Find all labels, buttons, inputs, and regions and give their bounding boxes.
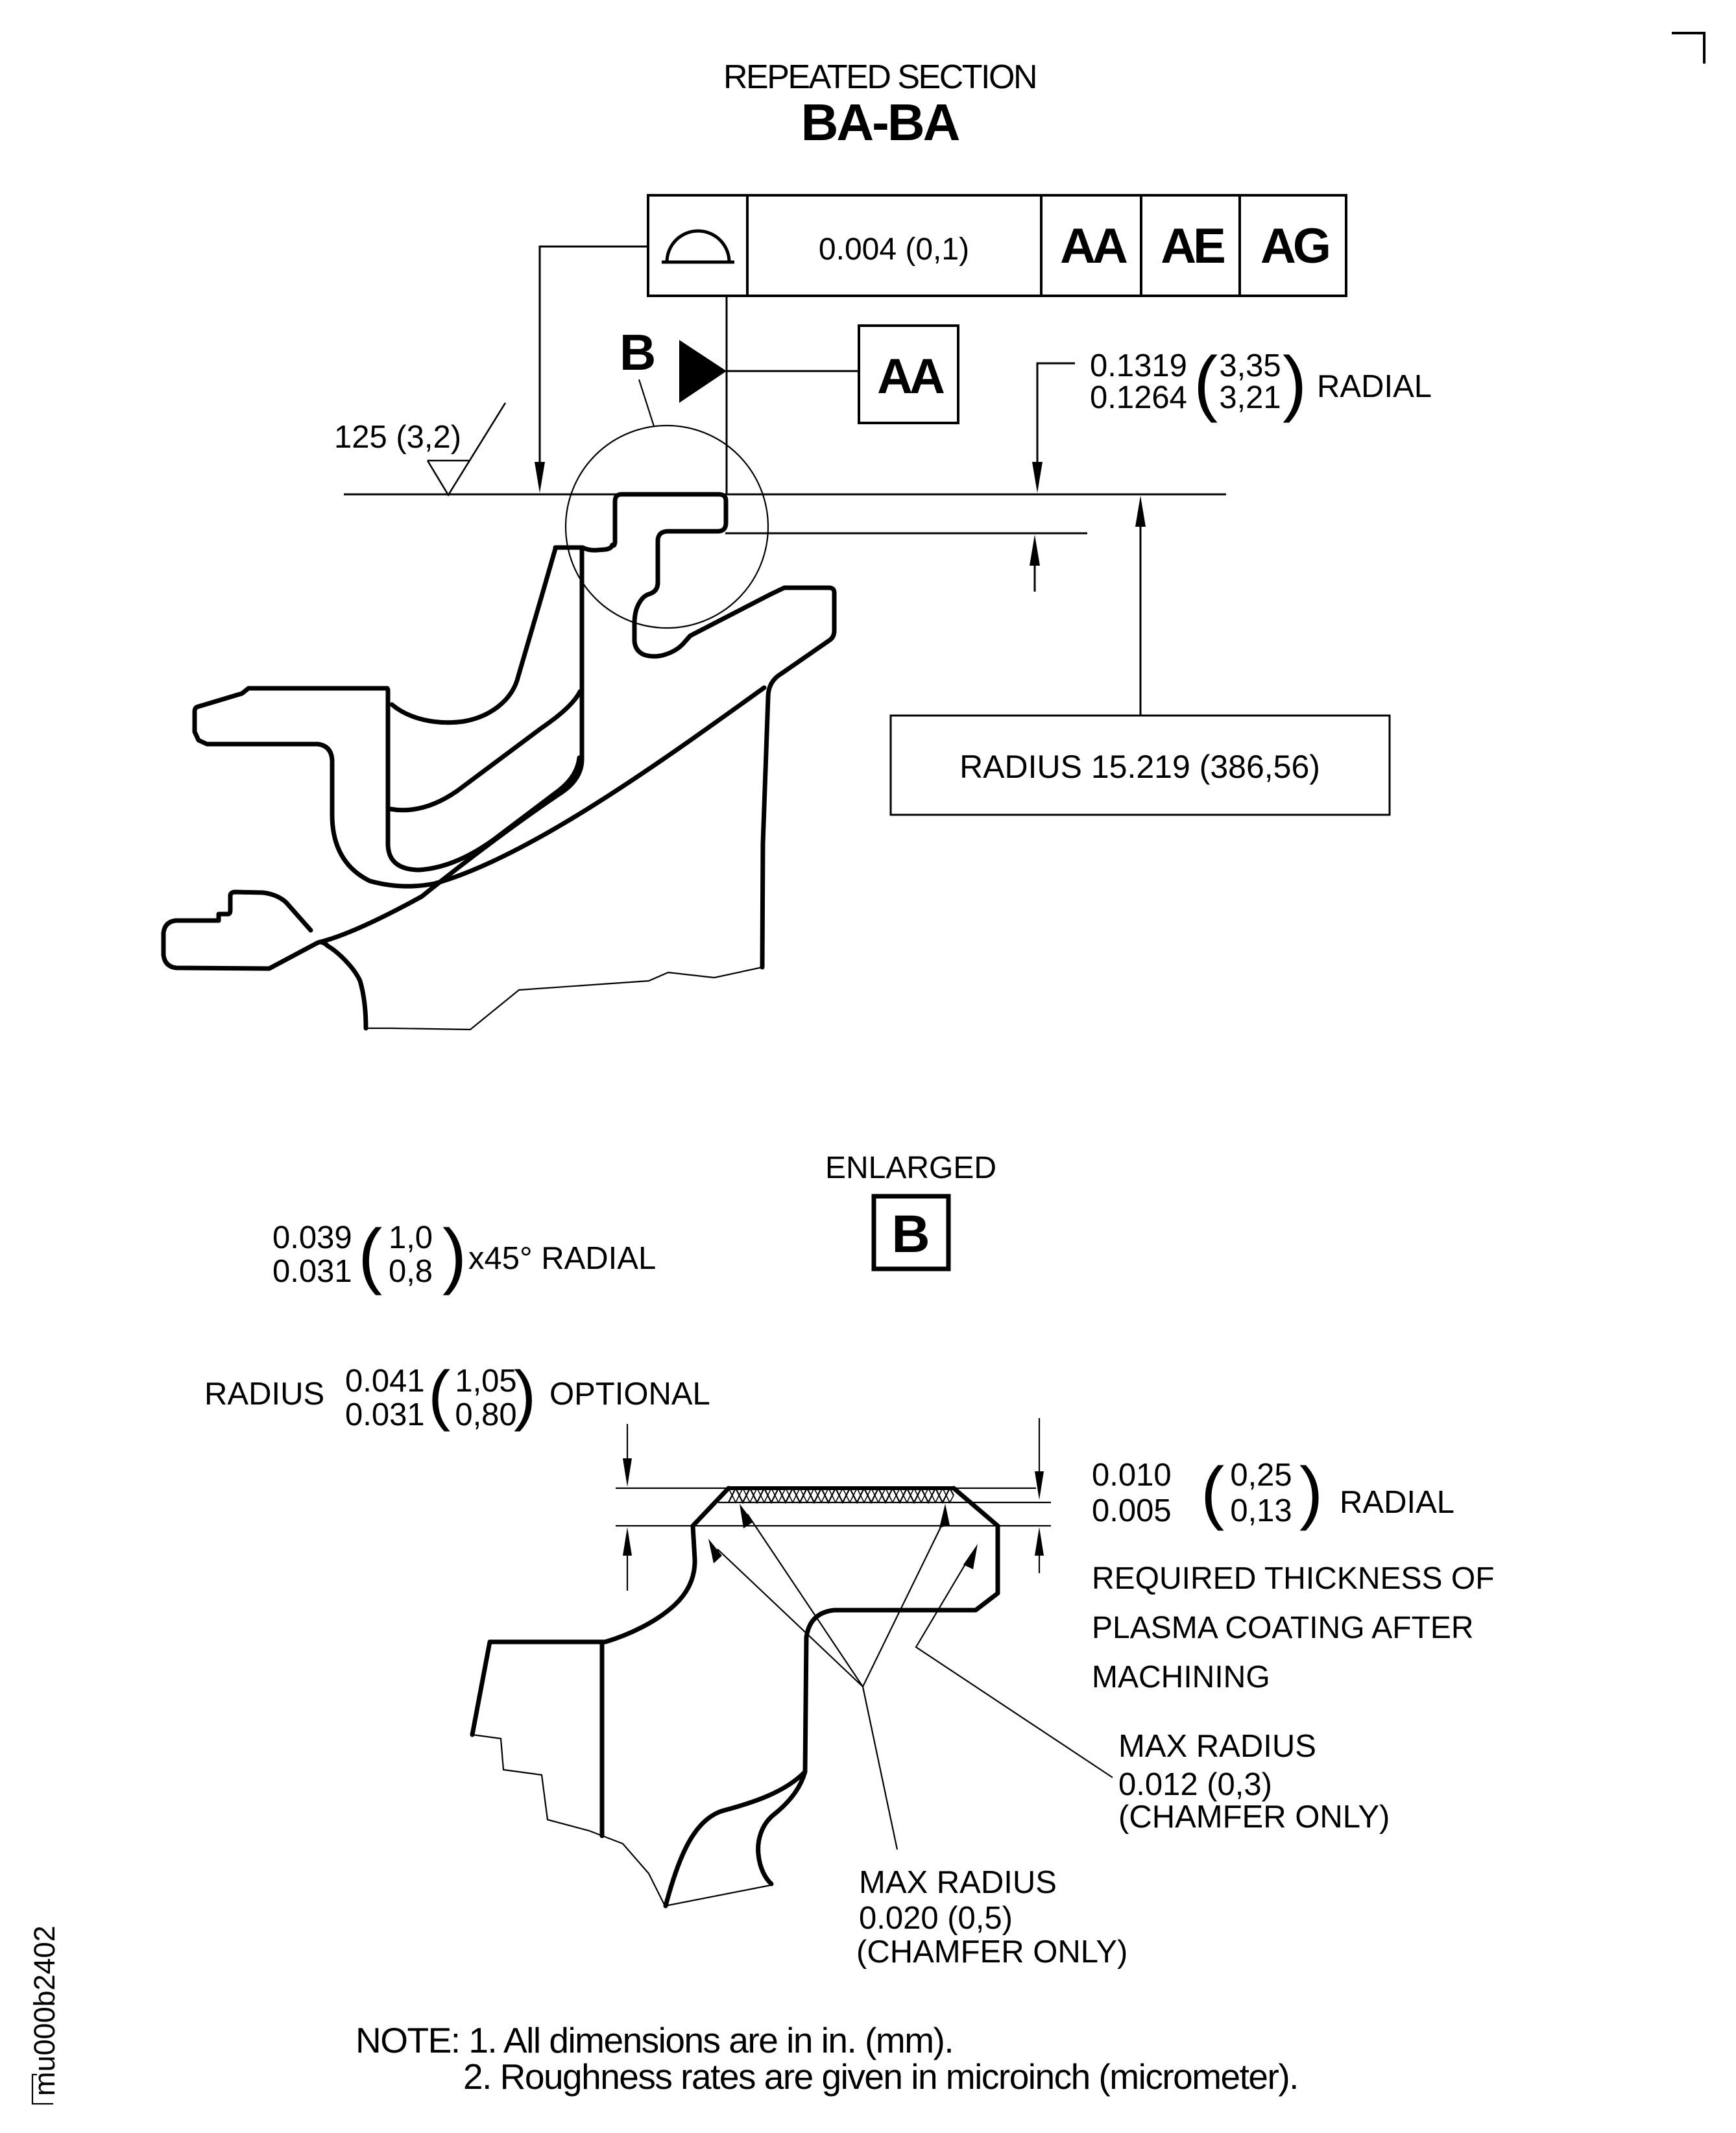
svg-text:0.031: 0.031 xyxy=(272,1254,352,1289)
svg-text:): ) xyxy=(442,1214,466,1295)
svg-text:0,8: 0,8 xyxy=(389,1254,433,1289)
svg-text:RADIUS: RADIUS xyxy=(204,1377,324,1412)
svg-text:0.005: 0.005 xyxy=(1092,1493,1172,1528)
svg-text:0.004 (0,1): 0.004 (0,1) xyxy=(819,232,969,267)
svg-text:0,80: 0,80 xyxy=(455,1397,516,1432)
svg-text:3,35: 3,35 xyxy=(1219,348,1281,383)
svg-text:AG: AG xyxy=(1260,219,1329,274)
svg-text:0.031: 0.031 xyxy=(345,1397,425,1432)
svg-text:): ) xyxy=(1299,1452,1323,1532)
svg-text:3,21: 3,21 xyxy=(1219,380,1281,415)
svg-text:(: ( xyxy=(1201,1452,1224,1532)
svg-text:RADIUS 15.219 (386,56): RADIUS 15.219 (386,56) xyxy=(959,749,1320,785)
svg-text:OPTIONAL: OPTIONAL xyxy=(549,1377,710,1412)
svg-text:1,05: 1,05 xyxy=(455,1364,516,1399)
svg-text:0.010: 0.010 xyxy=(1092,1458,1172,1493)
svg-text:): ) xyxy=(514,1357,536,1432)
svg-text:1,0: 1,0 xyxy=(389,1220,433,1255)
svg-text:0.039: 0.039 xyxy=(272,1220,352,1255)
svg-text:B: B xyxy=(891,1205,930,1264)
svg-text:PLASMA COATING AFTER: PLASMA COATING AFTER xyxy=(1092,1611,1474,1645)
svg-text:0,13: 0,13 xyxy=(1230,1493,1292,1528)
svg-text:AA: AA xyxy=(1060,219,1127,274)
svg-text:(: ( xyxy=(1194,342,1218,423)
svg-text:NOTE: 1. All dimensions are in: NOTE: 1. All dimensions are in in. (mm). xyxy=(356,2020,953,2060)
svg-text:RADIAL: RADIAL xyxy=(1317,369,1432,404)
svg-text:(CHAMFER ONLY): (CHAMFER ONLY) xyxy=(1118,1800,1390,1835)
svg-text:(: ( xyxy=(358,1214,382,1295)
svg-text:0.1319: 0.1319 xyxy=(1090,348,1187,383)
svg-text:0.020 (0,5): 0.020 (0,5) xyxy=(859,1901,1013,1936)
svg-text:B: B xyxy=(620,324,656,381)
svg-text:MAX RADIUS: MAX RADIUS xyxy=(1118,1729,1316,1764)
svg-text:125 (3,2): 125 (3,2) xyxy=(334,420,461,455)
svg-text:ENLARGED: ENLARGED xyxy=(825,1151,996,1185)
svg-text:AA: AA xyxy=(877,349,944,404)
svg-text:MACHINING: MACHINING xyxy=(1092,1660,1270,1694)
svg-text:(CHAMFER ONLY): (CHAMFER ONLY) xyxy=(856,1934,1127,1970)
svg-text:0.1264: 0.1264 xyxy=(1090,380,1187,415)
svg-text:2. Roughness rates are given i: 2. Roughness rates are given in microinc… xyxy=(463,2056,1298,2097)
svg-text:RADIAL: RADIAL xyxy=(1340,1485,1454,1520)
svg-text:REQUIRED THICKNESS OF: REQUIRED THICKNESS OF xyxy=(1092,1561,1495,1596)
svg-text:0,25: 0,25 xyxy=(1230,1458,1292,1493)
svg-text:0.012 (0,3): 0.012 (0,3) xyxy=(1118,1767,1272,1802)
svg-text:MAX RADIUS: MAX RADIUS xyxy=(859,1865,1057,1900)
svg-text:0.041: 0.041 xyxy=(345,1364,425,1399)
svg-text:x45° RADIAL: x45° RADIAL xyxy=(468,1241,656,1276)
svg-text:BA-BA: BA-BA xyxy=(801,93,959,151)
svg-text:): ) xyxy=(1283,342,1307,423)
svg-text:AE: AE xyxy=(1161,219,1224,274)
svg-text:(: ( xyxy=(428,1357,450,1432)
svg-text:REPEATED SECTION: REPEATED SECTION xyxy=(723,58,1036,96)
svg-text:mu000b2402: mu000b2402 xyxy=(28,1925,61,2096)
